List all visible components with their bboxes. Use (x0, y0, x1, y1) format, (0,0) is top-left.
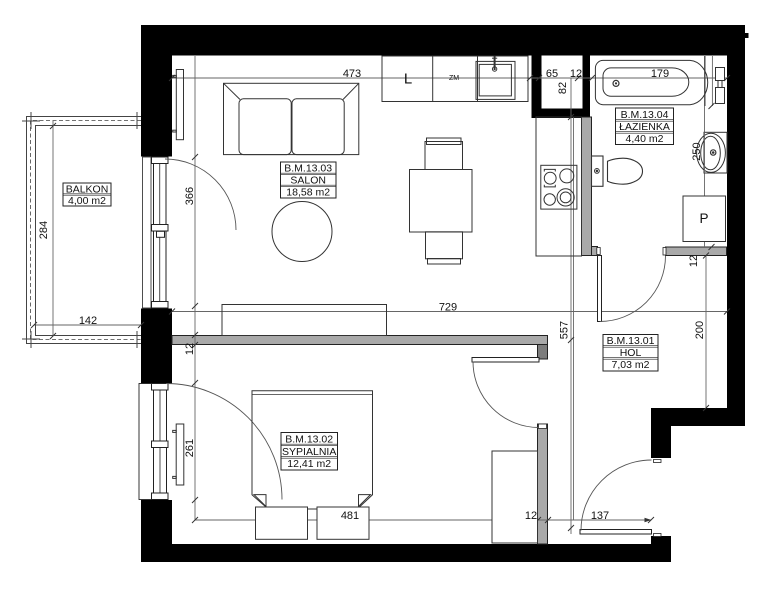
svg-text:4,40 m2: 4,40 m2 (626, 133, 664, 145)
svg-text:729: 729 (439, 302, 457, 314)
svg-text:P: P (699, 211, 708, 226)
svg-text:284: 284 (38, 221, 50, 239)
svg-text:366: 366 (184, 187, 196, 205)
svg-text:12,41 m2: 12,41 m2 (287, 458, 331, 470)
svg-text:B.M.13.01: B.M.13.01 (607, 335, 655, 347)
svg-text:65: 65 (546, 68, 558, 80)
svg-text:473: 473 (343, 68, 361, 80)
svg-text:ŁAZIENKA: ŁAZIENKA (619, 121, 670, 133)
svg-text:SYPIALNIA: SYPIALNIA (282, 446, 336, 458)
svg-text:B.M.13.02: B.M.13.02 (285, 433, 333, 445)
svg-text:18,58 m2: 18,58 m2 (286, 187, 330, 199)
svg-text:481: 481 (341, 510, 359, 522)
svg-text:12: 12 (570, 68, 582, 80)
svg-text:82: 82 (557, 82, 569, 94)
svg-text:ZM: ZM (449, 75, 459, 82)
svg-text:B.M.13.04: B.M.13.04 (621, 109, 669, 121)
svg-text:12: 12 (184, 343, 196, 355)
svg-text:200: 200 (694, 321, 706, 339)
svg-text:SALON: SALON (290, 175, 326, 187)
svg-text:4,00 m2: 4,00 m2 (68, 195, 106, 207)
svg-text:12: 12 (688, 255, 700, 267)
svg-text:137: 137 (591, 510, 609, 522)
svg-text:557: 557 (559, 321, 571, 339)
svg-text:7,03 m2: 7,03 m2 (612, 359, 650, 371)
svg-text:BALKON: BALKON (66, 184, 109, 196)
svg-text:142: 142 (79, 315, 97, 327)
svg-text:12: 12 (525, 510, 537, 522)
svg-text:261: 261 (184, 439, 196, 457)
svg-text:HOL: HOL (620, 347, 642, 359)
svg-text:179: 179 (651, 68, 669, 80)
svg-text:B.M.13.03: B.M.13.03 (284, 163, 332, 175)
svg-text:L: L (404, 71, 412, 88)
